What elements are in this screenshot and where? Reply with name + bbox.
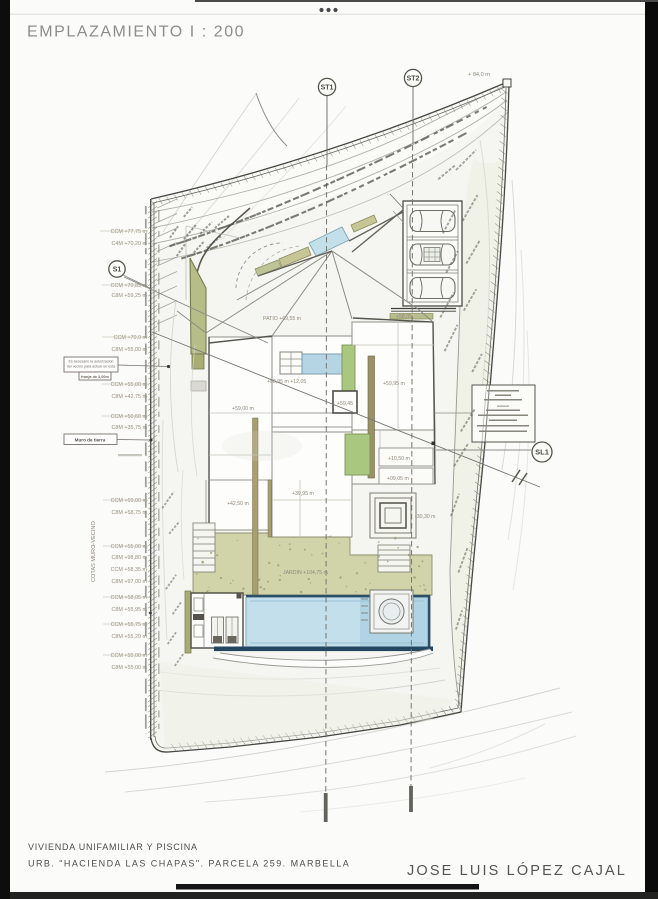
svg-text:C8M +58,75 m: C8M +58,75 m [111, 510, 147, 516]
svg-text:JOSE LUIS LÓPEZ CAJAL: JOSE LUIS LÓPEZ CAJAL [407, 862, 627, 879]
svg-text:CCM +77,75 m: CCM +77,75 m [111, 229, 148, 235]
svg-text:CCM +55,00 m: CCM +55,00 m [111, 653, 148, 659]
svg-text:S1: S1 [113, 267, 122, 274]
svg-text:CCM +58,35 m: CCM +58,35 m [111, 567, 148, 573]
svg-text:+ 84,0 m: + 84,0 m [468, 72, 490, 78]
svg-text:C8M +42,75 m: C8M +42,75 m [111, 394, 147, 400]
svg-text:C8M +35,75 m: C8M +35,75 m [111, 425, 147, 431]
svg-text:C8M +97,00 m: C8M +97,00 m [111, 579, 147, 585]
svg-text:Muro de tierra: Muro de tierra [75, 438, 106, 443]
svg-text:CCM +55,00 m: CCM +55,00 m [111, 544, 148, 550]
svg-text:+58,05: +58,05 [396, 314, 412, 320]
svg-text:JARDIN +104,75 m: JARDIN +104,75 m [283, 570, 328, 576]
svg-text:ST1: ST1 [321, 85, 334, 92]
svg-text:C8M +55,20 m: C8M +55,20 m [111, 634, 147, 640]
svg-text:CCM +70,0 m: CCM +70,0 m [114, 335, 148, 341]
svg-text:+39,95 m: +39,95 m [292, 491, 314, 497]
svg-text:Es necesario la autorizacion: Es necesario la autorizacion [69, 360, 114, 364]
svg-text:C4M +70,20 m: C4M +70,20 m [111, 241, 147, 247]
svg-text:ST2: ST2 [407, 76, 420, 83]
svg-text:+58,95 m +12,05: +58,95 m +12,05 [267, 379, 306, 385]
svg-text:PATIO +69,55 m: PATIO +69,55 m [263, 316, 301, 322]
svg-text:(30,30 m: (30,30 m [415, 514, 435, 520]
svg-text:CCM +59,00 m: CCM +59,00 m [111, 498, 148, 504]
svg-text:SL1: SL1 [535, 448, 549, 457]
svg-text:+59,45: +59,45 [337, 401, 353, 407]
svg-text:+10,50 m: +10,50 m [388, 456, 410, 462]
svg-text:C8M +55,00 m: C8M +55,00 m [111, 347, 147, 353]
svg-text:C8M +98,80 m: C8M +98,80 m [111, 555, 147, 561]
svg-text:CCM +55,00 m: CCM +55,00 m [111, 382, 148, 388]
svg-text:+59,00 m: +59,00 m [232, 406, 254, 412]
svg-text:+42,50 m: +42,50 m [227, 501, 249, 507]
svg-text:del vecino para actuar en esta: del vecino para actuar en esta [67, 365, 115, 369]
svg-text:C8M +59,25 m: C8M +59,25 m [111, 293, 147, 299]
svg-text:CCM +50,60 m: CCM +50,60 m [111, 414, 148, 420]
svg-text:+09,05 m: +09,05 m [387, 476, 409, 482]
svg-text:C8M +55,00 m: C8M +55,00 m [111, 665, 147, 671]
svg-text:franja de 3,00m: franja de 3,00m [81, 375, 109, 379]
svg-text:CCM +55,75 m: CCM +55,75 m [111, 622, 148, 628]
svg-text:URB. "HACIENDA LAS CHAPAS". PA: URB. "HACIENDA LAS CHAPAS". PARCELA 259.… [28, 859, 350, 869]
svg-text:C8M +55,95 m: C8M +55,95 m [111, 607, 147, 613]
svg-text:CCM +58,05 m: CCM +58,05 m [111, 595, 148, 601]
svg-text:COTAS MURO-VECINO: COTAS MURO-VECINO [91, 521, 97, 582]
svg-text:EMPLAZAMIENTO I : 200: EMPLAZAMIENTO I : 200 [27, 24, 245, 41]
svg-text:VIVIENDA UNIFAMILIAR Y PISCINA: VIVIENDA UNIFAMILIAR Y PISCINA [28, 842, 198, 852]
svg-text:+59,95 m: +59,95 m [383, 381, 405, 387]
